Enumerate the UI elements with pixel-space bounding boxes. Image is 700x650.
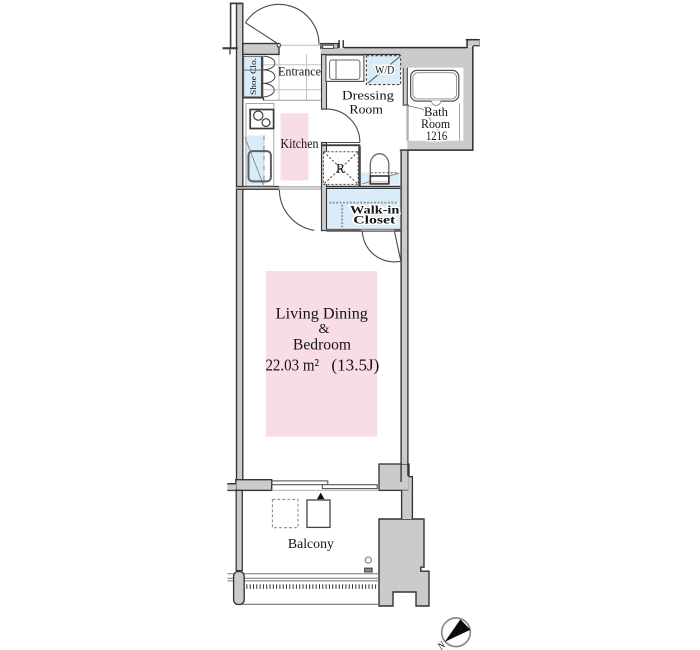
svg-text:Kitchen: Kitchen xyxy=(280,136,318,151)
svg-text:&: & xyxy=(319,322,330,337)
svg-text:Living Dining: Living Dining xyxy=(276,305,368,322)
svg-text:1216: 1216 xyxy=(426,128,448,143)
svg-text:Room: Room xyxy=(349,102,383,117)
svg-text:Closet: Closet xyxy=(353,213,395,227)
svg-text:Shoe Clo.: Shoe Clo. xyxy=(249,58,258,95)
svg-text:(13.5J): (13.5J) xyxy=(331,356,379,375)
svg-text:Balcony: Balcony xyxy=(288,536,334,551)
svg-text:W/D: W/D xyxy=(375,65,394,77)
svg-text:Bedroom: Bedroom xyxy=(293,337,351,354)
svg-text:22.03 m²: 22.03 m² xyxy=(265,356,319,375)
svg-text:R: R xyxy=(336,162,345,177)
svg-text:Entrance: Entrance xyxy=(278,64,321,79)
svg-text:Dressing: Dressing xyxy=(342,87,395,102)
